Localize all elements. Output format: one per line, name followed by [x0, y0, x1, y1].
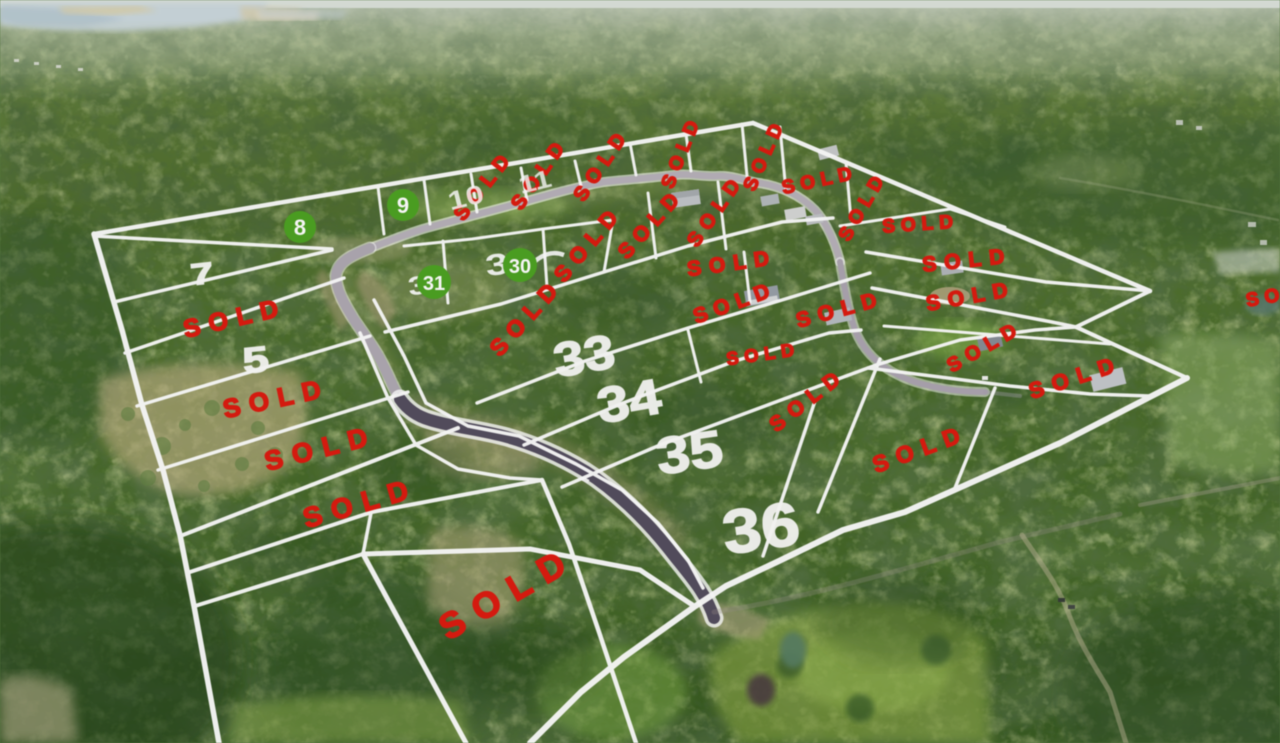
svg-text:8: 8 — [294, 215, 306, 240]
svg-text:31: 31 — [423, 273, 445, 295]
svg-text:34: 34 — [593, 369, 666, 435]
svg-text:5: 5 — [241, 338, 271, 381]
svg-text:7: 7 — [189, 256, 215, 292]
svg-text:9: 9 — [397, 193, 409, 218]
svg-text:36: 36 — [718, 488, 804, 568]
svg-text:30: 30 — [509, 256, 531, 278]
svg-text:35: 35 — [652, 419, 726, 486]
